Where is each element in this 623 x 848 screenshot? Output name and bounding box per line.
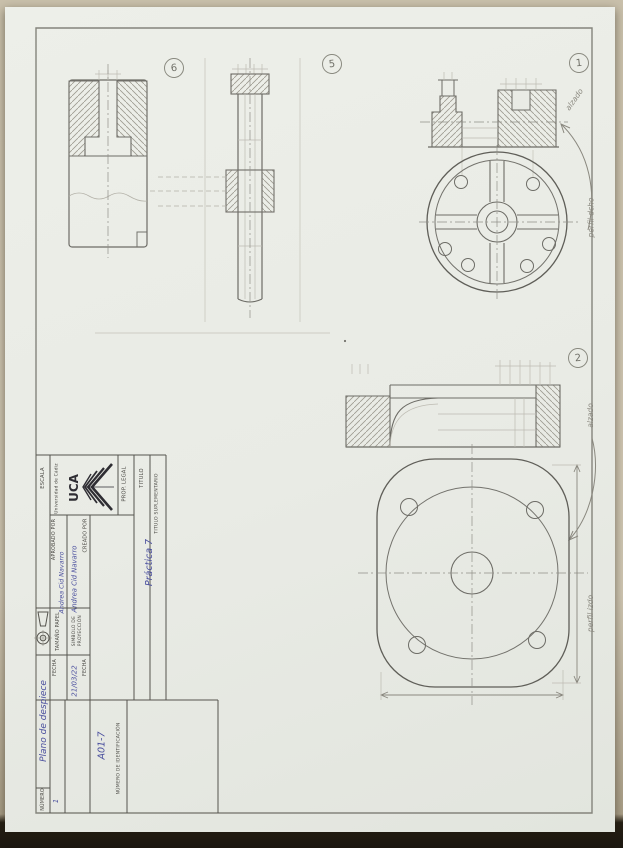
paper-sheet — [5, 7, 615, 832]
numero-label: NÚMERO — [37, 786, 49, 812]
numero-identificacion-value: A01-7 — [92, 712, 112, 778]
photo-of-drawing-sheet: 6 5 1 2 alzado perfil dcho alzado perfil… — [0, 0, 623, 848]
titulo-suplementario-label: TITULO SUPLEMENTARIO — [150, 457, 165, 549]
fecha2-label: FECHA — [51, 656, 60, 678]
plano-despiece-value: Plano de despiece — [35, 652, 52, 790]
university-acronym: UCA — [62, 462, 86, 514]
numero-value: 1 — [51, 793, 62, 809]
balloon-1-number: 1 — [575, 57, 582, 69]
creado-por-label: CREADO POR — [81, 517, 90, 553]
annotation-view2-name: alzado — [583, 392, 598, 438]
annotation-view1-name: alzado — [562, 74, 586, 124]
balloon-5-number: 5 — [328, 58, 335, 70]
numero-identificacion-label: NÚMERO DE IDENTIFICACIÓN — [114, 702, 124, 814]
prop-legal-label: PROP. LEGAL — [116, 456, 133, 512]
escala-label: ESCALA — [36, 456, 50, 500]
tamano-papel-label: TAMAÑO PAPEL — [50, 607, 67, 655]
annotation-view1-side: perfil dcho — [583, 186, 598, 248]
annotation-view2-side: perfil izdo — [583, 578, 598, 648]
balloon-6-number: 6 — [170, 62, 177, 74]
titulo-label: TITULO — [134, 457, 149, 499]
fecha-label: FECHA — [81, 656, 90, 678]
balloon-2-number: 2 — [574, 352, 581, 364]
simbolo-proyeccion-label: SIMBOLO DE PROYECCIÓN — [67, 606, 89, 656]
fecha-value: 21/03/22 — [67, 658, 82, 704]
